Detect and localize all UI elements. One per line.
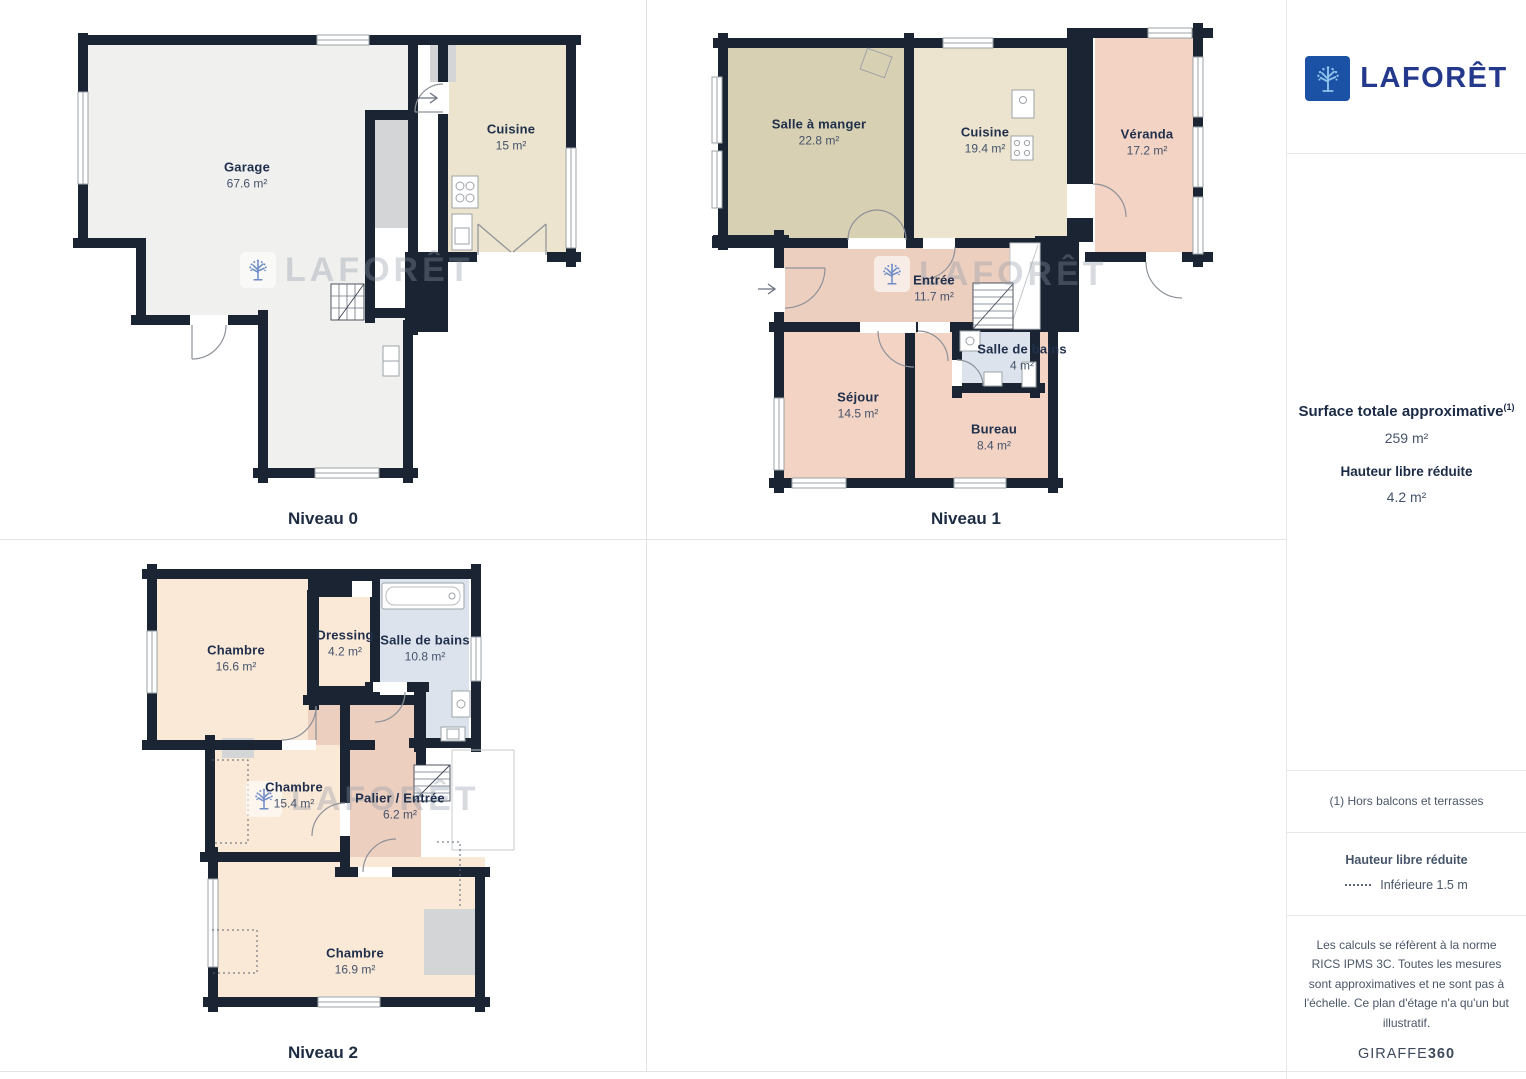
giraffe360-credit: GIRAFFE360 (1287, 1046, 1526, 1062)
room-label-chambre-3: Chambre 16.9 m² (326, 946, 384, 977)
room-label-chambre-1: Chambre 16.6 m² (207, 643, 265, 674)
room-label-garage: Garage 67.6 m² (224, 160, 270, 191)
legend-label: Inférieure 1.5 m (1380, 878, 1468, 892)
room-label-salle-de-bains-n1: Salle de bains 4 m² (977, 342, 1067, 373)
reduced-height-title: Hauteur libre réduite (1287, 464, 1526, 479)
room-label-dressing: Dressing 4.2 m² (316, 628, 373, 659)
sidebar-divider (1287, 770, 1526, 771)
floorplan-niveau-0 (0, 0, 646, 539)
sidebar-divider (1287, 915, 1526, 916)
room-label-sejour: Séjour 14.5 m² (837, 390, 879, 421)
floorplan-page: { "brand": { "name": "LAFORÊT" }, "water… (0, 0, 1526, 1079)
laforet-tree-icon (1305, 56, 1350, 101)
level-2-panel: LAFORÊT Chambre 16.6 m² Dressing 4.2 m² … (0, 539, 646, 1079)
void-outline (452, 750, 514, 850)
footnote-ref: (1) (1504, 402, 1515, 412)
floorplan-niveau-1 (646, 0, 1286, 539)
level-0-panel: LAFORÊT Garage 67.6 m² Cuisine 15 m² Niv… (0, 0, 646, 539)
disclaimer: Les calculs se réfèrent à la norme RICS … (1287, 936, 1526, 1062)
sidebar-divider (1287, 153, 1526, 154)
surface-total-value: 259 m² (1287, 430, 1526, 446)
room-label-chambre-2: Chambre 15.4 m² (265, 780, 323, 811)
sidebar-divider (1287, 1071, 1526, 1072)
entrance-arrow-icon (758, 284, 775, 294)
room-label-cuisine-n1: Cuisine 19.4 m² (961, 125, 1009, 156)
room-label-cuisine-n0: Cuisine 15 m² (487, 122, 535, 153)
sidebar-divider (1287, 832, 1526, 833)
level-caption-1: Niveau 1 (646, 509, 1286, 529)
room-label-palier-entree: Palier / Entrée 6.2 m² (355, 791, 445, 822)
room-label-salle-a-manger: Salle à manger 22.8 m² (772, 117, 867, 148)
legend-title: Hauteur libre réduite (1287, 853, 1526, 867)
stairs-icon (331, 284, 364, 320)
laforet-wordmark: LAFORÊT (1360, 62, 1507, 95)
footnote: (1) Hors balcons et terrasses (1287, 794, 1526, 808)
understairs (1010, 243, 1040, 329)
room-label-veranda: Véranda 17.2 m² (1121, 127, 1174, 158)
surface-total-title: Surface totale approximative(1) (1287, 402, 1526, 420)
info-sidebar: LAFORÊT Surface totale approximative(1) … (1286, 0, 1526, 1079)
surface-summary: Surface totale approximative(1) 259 m² H… (1287, 402, 1526, 505)
stairs-icon (973, 283, 1013, 329)
laforet-logo: LAFORÊT (1287, 56, 1526, 101)
disclaimer-text: Les calculs se réfèrent à la norme RICS … (1301, 936, 1513, 1033)
room-label-bureau: Bureau 8.4 m² (971, 422, 1017, 453)
reduced-height-value: 4.2 m² (1287, 489, 1526, 505)
room-label-salle-de-bains-n2: Salle de bains 10.8 m² (380, 633, 470, 664)
dotted-line-swatch (1345, 884, 1371, 886)
level-caption-0: Niveau 0 (0, 509, 646, 529)
level-1-panel: LAFORÊT Salle à manger 22.8 m² Cuisine 1… (646, 0, 1286, 539)
legend: Hauteur libre réduite Inférieure 1.5 m (1287, 853, 1526, 892)
floorplan-niveau-2 (0, 539, 646, 1079)
level-caption-2: Niveau 2 (0, 1043, 646, 1063)
room-label-entree: Entrée 11.7 m² (913, 273, 955, 304)
